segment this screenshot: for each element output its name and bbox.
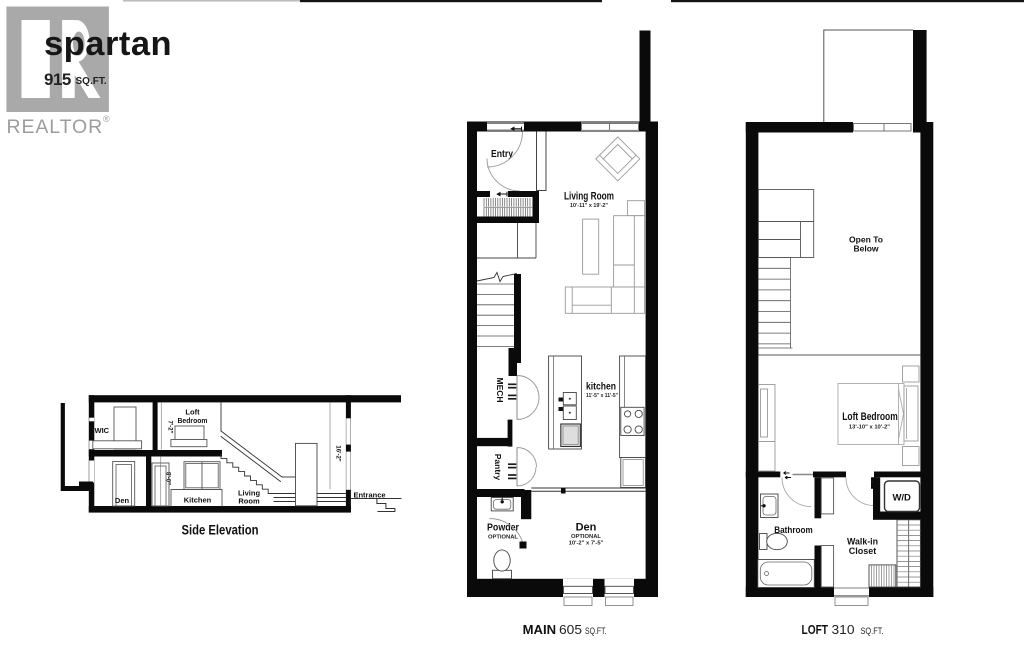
svg-text:Room: Room: [238, 497, 260, 506]
svg-text:Kitchen: Kitchen: [184, 496, 212, 505]
svg-text:Powder: Powder: [487, 522, 519, 534]
svg-text:605: 605: [559, 623, 582, 637]
svg-text:16'-2": 16'-2": [335, 445, 341, 461]
svg-text:MAIN: MAIN: [523, 623, 557, 637]
svg-text:Den: Den: [115, 496, 130, 505]
svg-text:Closet: Closet: [849, 546, 877, 557]
svg-text:Side Elevation: Side Elevation: [182, 522, 259, 538]
svg-text:13'-10" x 10'-2": 13'-10" x 10'-2": [849, 425, 890, 431]
svg-text:Living Room: Living Room: [564, 191, 614, 203]
svg-text:Loft Bedroom: Loft Bedroom: [842, 411, 898, 423]
svg-text:310: 310: [832, 623, 855, 637]
svg-text:Bedroom: Bedroom: [178, 416, 208, 425]
svg-text:SQ.FT.: SQ.FT.: [585, 626, 607, 637]
svg-text:11'-5" x 11'-5": 11'-5" x 11'-5": [586, 393, 618, 399]
svg-text:WIC: WIC: [95, 426, 110, 435]
svg-text:10'-11" x 19'-2": 10'-11" x 19'-2": [570, 203, 608, 209]
svg-text:SQ.FT.: SQ.FT.: [76, 76, 107, 87]
svg-text:10'-2" x 7'-5": 10'-2" x 7'-5": [569, 541, 604, 547]
svg-text:Below: Below: [853, 244, 878, 254]
svg-text:REALTOR: REALTOR: [7, 116, 104, 138]
svg-text:8'-0": 8'-0": [165, 472, 171, 485]
svg-text:OPTIONAL: OPTIONAL: [571, 534, 601, 540]
svg-text:LOFT: LOFT: [802, 623, 829, 637]
svg-text:®: ®: [103, 114, 110, 124]
svg-text:SQ.FT.: SQ.FT.: [861, 626, 884, 637]
svg-text:Den: Den: [576, 522, 597, 534]
svg-text:MECH: MECH: [495, 377, 505, 402]
svg-text:7'-2": 7'-2": [167, 421, 173, 434]
svg-text:OPTIONAL: OPTIONAL: [488, 535, 518, 541]
svg-text:915: 915: [44, 70, 71, 89]
svg-text:spartan: spartan: [44, 25, 172, 63]
svg-text:kitchen: kitchen: [586, 381, 616, 393]
svg-text:W/D: W/D: [892, 493, 911, 504]
svg-text:Pantry: Pantry: [493, 454, 503, 481]
